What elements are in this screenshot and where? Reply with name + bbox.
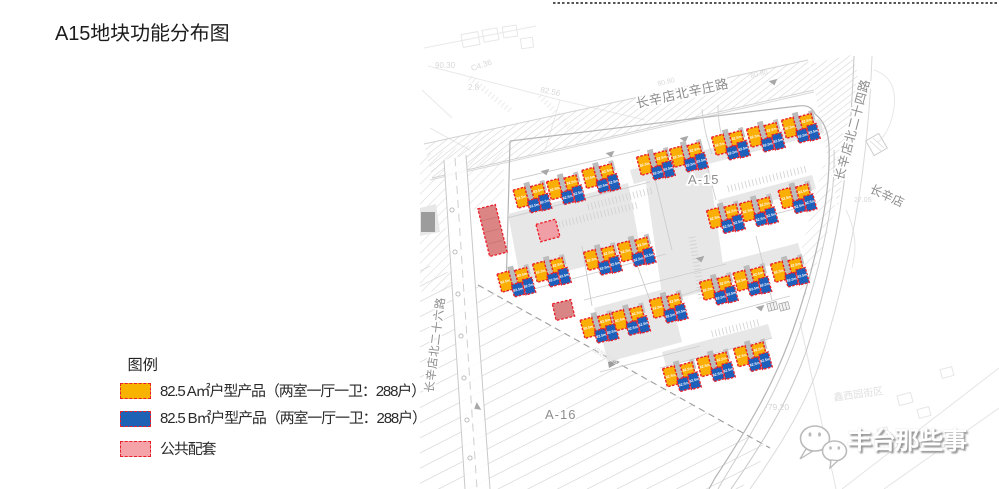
svg-text:82.56: 82.56: [539, 84, 561, 99]
svg-text:鑫西园街区: 鑫西园街区: [832, 382, 884, 404]
svg-text:A-15: A-15: [688, 169, 719, 188]
svg-text:A-16: A-16: [545, 404, 576, 423]
svg-text:90.30: 90.30: [435, 60, 456, 71]
svg-text:长辛店: 长辛店: [867, 180, 907, 211]
svg-text:27.05: 27.05: [854, 195, 872, 205]
svg-text:2.8: 2.8: [468, 82, 480, 93]
svg-text:·79.20: ·79.20: [765, 401, 789, 413]
svg-text:C4.36: C4.36: [470, 57, 494, 74]
